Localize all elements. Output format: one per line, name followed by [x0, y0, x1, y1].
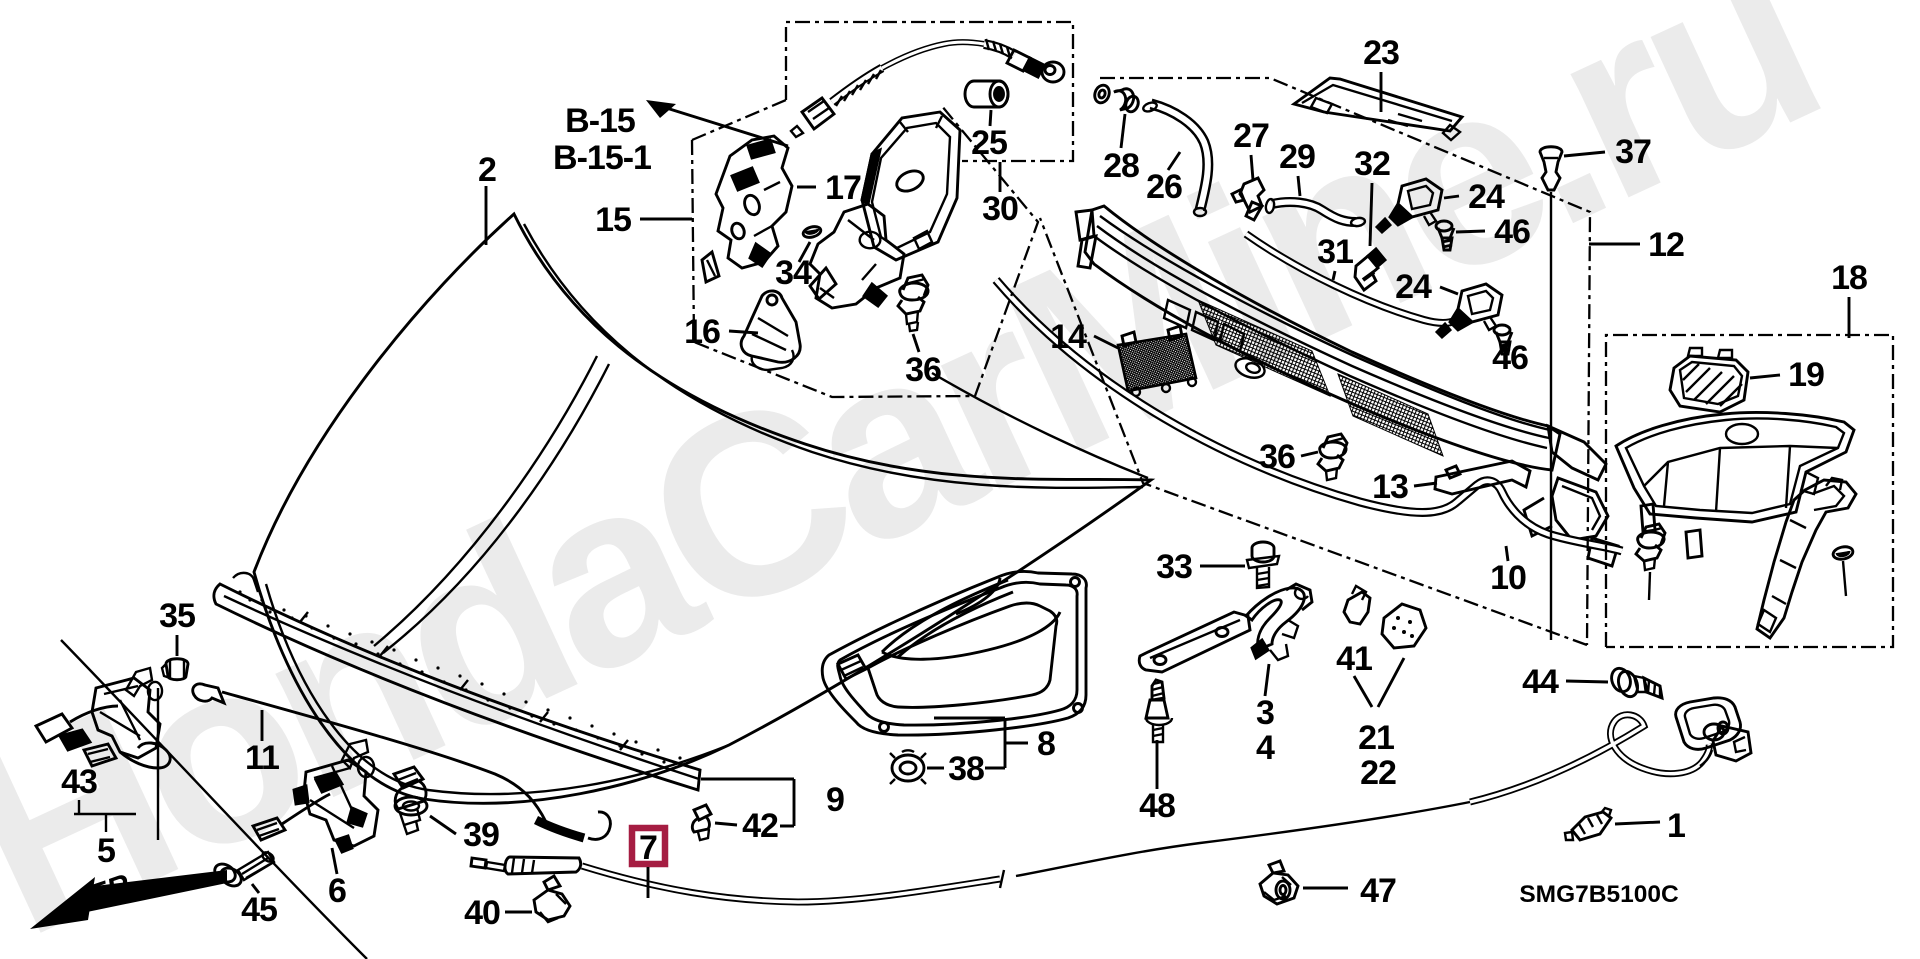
svg-text:24: 24 — [1395, 268, 1432, 306]
svg-text:31: 31 — [1317, 233, 1353, 271]
svg-text:27: 27 — [1233, 117, 1269, 155]
svg-text:B-15-1: B-15-1 — [553, 139, 651, 177]
svg-text:35: 35 — [159, 597, 195, 635]
svg-text:5: 5 — [97, 832, 115, 870]
svg-text:43: 43 — [61, 763, 97, 801]
svg-text:B-15: B-15 — [565, 102, 635, 140]
svg-text:38: 38 — [948, 750, 984, 788]
svg-text:44: 44 — [1522, 663, 1559, 701]
svg-text:17: 17 — [825, 169, 861, 207]
svg-text:19: 19 — [1788, 356, 1824, 394]
svg-text:15: 15 — [595, 201, 631, 239]
svg-text:33: 33 — [1156, 548, 1192, 586]
svg-text:13: 13 — [1372, 468, 1408, 506]
svg-text:12: 12 — [1648, 226, 1684, 264]
svg-text:1: 1 — [1667, 807, 1685, 845]
svg-text:21: 21 — [1358, 719, 1394, 757]
svg-text:18: 18 — [1831, 259, 1867, 297]
svg-text:30: 30 — [982, 190, 1018, 228]
svg-text:2: 2 — [478, 151, 496, 189]
svg-text:45: 45 — [241, 891, 277, 929]
svg-text:36: 36 — [1259, 438, 1295, 476]
svg-text:25: 25 — [971, 124, 1007, 162]
svg-text:47: 47 — [1360, 872, 1396, 910]
svg-text:11: 11 — [245, 739, 279, 777]
svg-text:4: 4 — [1256, 729, 1275, 767]
svg-text:41: 41 — [1336, 640, 1372, 678]
svg-text:SMG7B5100C: SMG7B5100C — [1519, 881, 1679, 908]
svg-text:7: 7 — [639, 829, 657, 867]
svg-text:29: 29 — [1279, 138, 1315, 176]
svg-text:6: 6 — [328, 872, 346, 910]
svg-text:48: 48 — [1139, 787, 1175, 825]
svg-text:39: 39 — [463, 816, 499, 854]
svg-text:22: 22 — [1360, 754, 1396, 792]
svg-text:46: 46 — [1492, 339, 1528, 377]
svg-text:46: 46 — [1494, 213, 1530, 251]
svg-text:28: 28 — [1103, 147, 1139, 185]
svg-text:14: 14 — [1050, 318, 1087, 356]
svg-text:9: 9 — [826, 781, 844, 819]
svg-text:8: 8 — [1037, 725, 1055, 763]
svg-text:16: 16 — [684, 313, 720, 351]
svg-text:37: 37 — [1615, 133, 1651, 171]
svg-text:36: 36 — [905, 351, 941, 389]
svg-text:10: 10 — [1490, 559, 1526, 597]
svg-text:26: 26 — [1146, 168, 1182, 206]
svg-text:24: 24 — [1468, 178, 1505, 216]
svg-text:32: 32 — [1354, 145, 1390, 183]
svg-text:42: 42 — [742, 807, 778, 845]
svg-text:40: 40 — [464, 894, 500, 932]
svg-text:34: 34 — [775, 254, 812, 292]
svg-text:23: 23 — [1363, 34, 1399, 72]
svg-text:3: 3 — [1256, 694, 1274, 732]
